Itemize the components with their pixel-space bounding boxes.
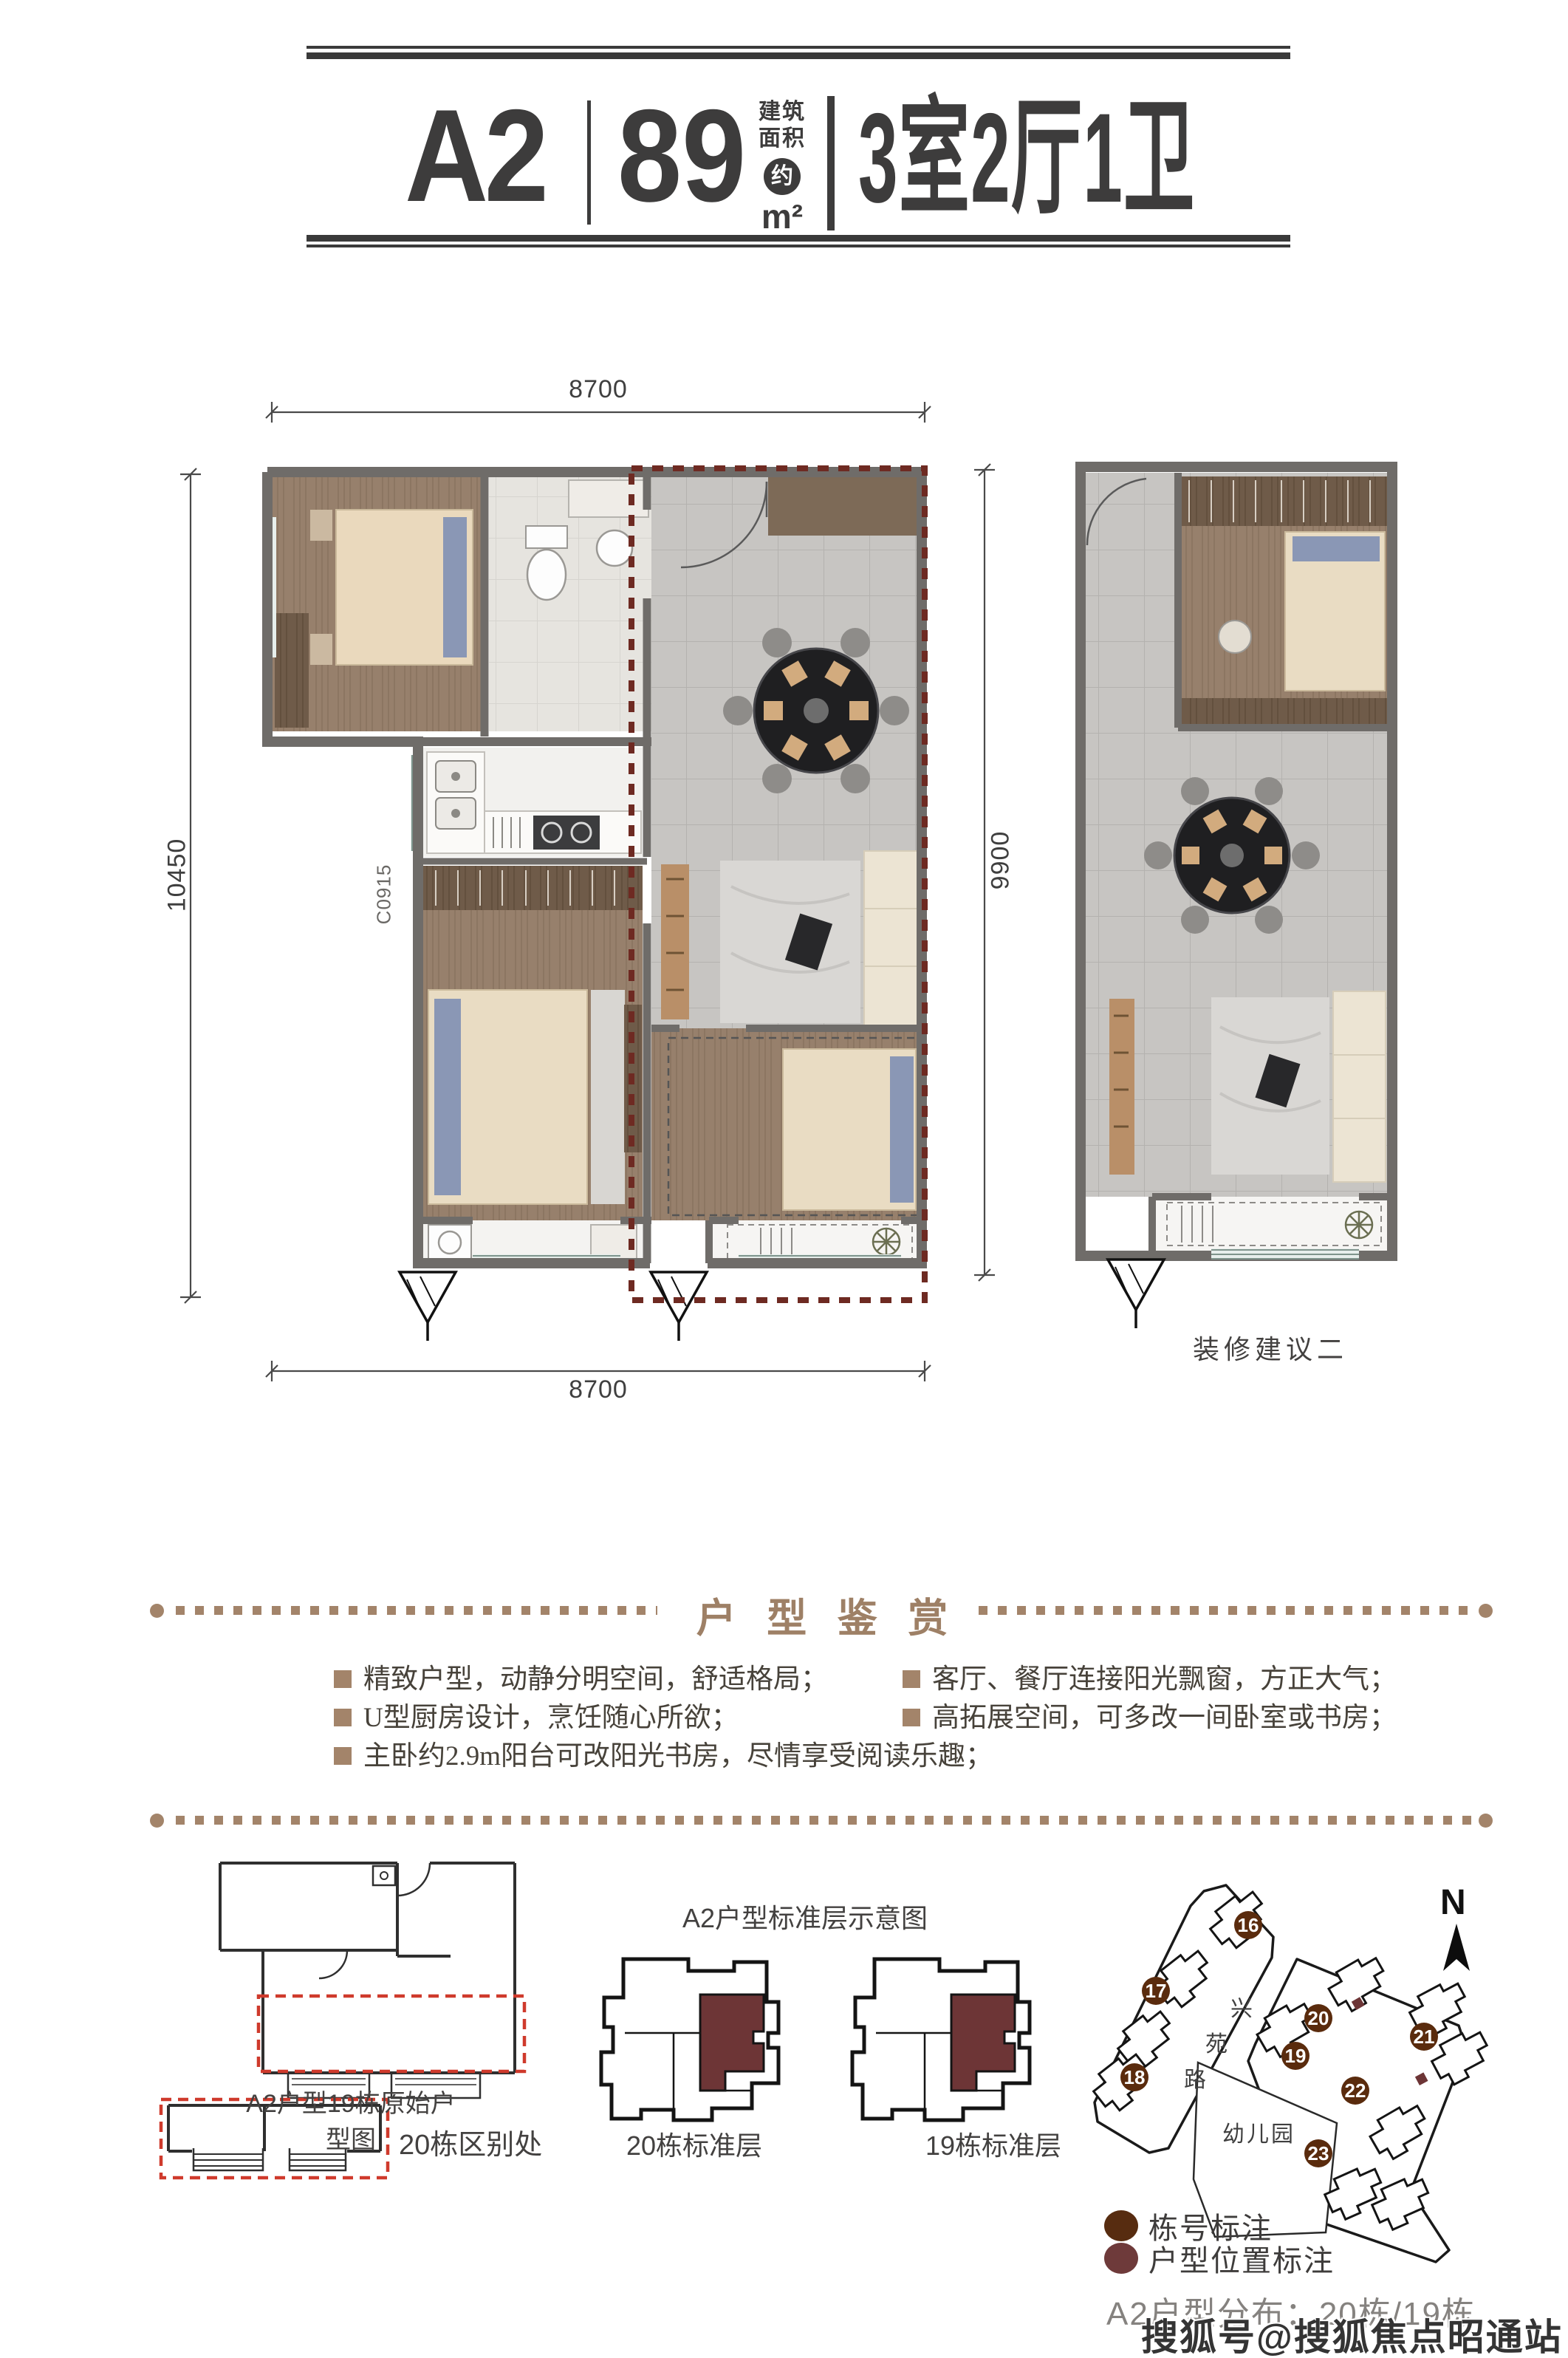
building-marker: 17 bbox=[1142, 1977, 1170, 2005]
feature-text: 高拓展空间，可多改一间卧室或书房； bbox=[932, 1702, 1397, 1735]
feature-item: 主卧约2.9m阳台可改阳光书房，尽情享受阅读乐趣； bbox=[334, 1740, 993, 1773]
layout-text: 3室2厅1卫 bbox=[858, 95, 1195, 222]
divider2-dot-left bbox=[150, 1814, 164, 1828]
building-marker: 18 bbox=[1120, 2063, 1148, 2091]
area-value: 89 bbox=[617, 90, 746, 222]
building-marker: 19 bbox=[1281, 2042, 1309, 2070]
header-rule-bottom-thin bbox=[307, 245, 1290, 247]
header-rule-top-thin bbox=[307, 46, 1290, 49]
main-floorplan bbox=[180, 402, 995, 1381]
road-char: 路 bbox=[1184, 2061, 1206, 2094]
legend-unit-row: 户型位置标注 bbox=[1104, 2237, 1335, 2280]
road-char: 苑 bbox=[1205, 2026, 1228, 2058]
feature-item: 高拓展空间，可多改一间卧室或书房； bbox=[903, 1702, 1397, 1735]
legend-unit-label: 户型位置标注 bbox=[1148, 2237, 1335, 2280]
unit-code: A2 bbox=[405, 90, 545, 222]
bullet-square-icon bbox=[334, 1670, 352, 1688]
feature-text: 主卧约2.9m阳台可改阳光书房，尽情享受阅读乐趣； bbox=[363, 1740, 993, 1773]
approx-badge: 约 bbox=[764, 158, 801, 195]
area-unit: m² bbox=[753, 196, 811, 236]
standard-floor-diagrams bbox=[601, 1959, 1030, 2120]
building-marker: 23 bbox=[1304, 2139, 1332, 2167]
dim-top: 8700 bbox=[543, 375, 654, 404]
feature-text: 客厅、餐厅连接阳光飘窗，方正大气； bbox=[932, 1664, 1397, 1696]
feature-text: U型厨房设计，烹饪随心所欲； bbox=[363, 1702, 739, 1735]
divider2-dash bbox=[176, 1816, 1477, 1825]
variant-label: 装修建议二 bbox=[1193, 1328, 1348, 1367]
bullet-square-icon bbox=[334, 1747, 352, 1765]
building-marker: 21 bbox=[1410, 2023, 1438, 2051]
building19-caption: 19栋标准层 bbox=[890, 2125, 1097, 2163]
building-marker: 16 bbox=[1234, 1911, 1262, 1939]
area-label-line2: 面积 bbox=[753, 126, 811, 152]
window-code: C0915 bbox=[373, 847, 396, 943]
variant-floorplan bbox=[1081, 467, 1392, 1328]
divider2-dot-right bbox=[1479, 1814, 1493, 1828]
difference-caption: 20栋区别处 bbox=[399, 2122, 542, 2162]
bullet-square-icon bbox=[903, 1709, 920, 1726]
appreciation-title: 户 型 鉴 赏 bbox=[668, 1585, 986, 1644]
dim-left: 10450 bbox=[163, 813, 192, 938]
floorplan-sheet: A2 89 建筑 面积 约 m² 3室2厅1卫 8700 8700 10450 … bbox=[0, 0, 1568, 2358]
north-label: N bbox=[1440, 1882, 1466, 1923]
divider1-dot-right bbox=[1479, 1604, 1493, 1618]
north-arrow-icon bbox=[1443, 1924, 1470, 1971]
bullet-square-icon bbox=[903, 1670, 920, 1688]
divider1-dot-left bbox=[150, 1604, 164, 1618]
building20-caption: 20栋标准层 bbox=[591, 2125, 798, 2163]
road-char: 兴 bbox=[1230, 1990, 1253, 2023]
watermark: 搜狐号@搜狐焦点昭通站 bbox=[1141, 2308, 1563, 2358]
building-marker: 20 bbox=[1304, 2004, 1332, 2032]
feature-item: 精致户型，动静分明空间，舒适格局； bbox=[334, 1664, 828, 1696]
feature-text: 精致户型，动静分明空间，舒适格局； bbox=[363, 1664, 828, 1696]
feature-item: U型厨房设计，烹饪随心所欲； bbox=[334, 1702, 739, 1735]
header-rule-bottom-thick bbox=[307, 235, 1290, 242]
bullet-square-icon bbox=[334, 1709, 352, 1726]
divider1-dash-left bbox=[176, 1606, 657, 1615]
header-divider-2 bbox=[827, 96, 835, 230]
dim-right: 9900 bbox=[987, 805, 1016, 916]
header-divider-1 bbox=[587, 100, 591, 225]
standard-floor-title: A2户型标准层示意图 bbox=[657, 1897, 953, 1935]
unit-marker-icon bbox=[1104, 2243, 1138, 2274]
header-rule-top-thick bbox=[307, 52, 1290, 59]
divider1-dash-right bbox=[979, 1606, 1477, 1615]
feature-item: 客厅、餐厅连接阳光飘窗，方正大气； bbox=[903, 1664, 1397, 1696]
kindergarten-label: 幼儿园 bbox=[1222, 2116, 1295, 2148]
dim-bottom: 8700 bbox=[543, 1375, 654, 1404]
building-marker: 22 bbox=[1341, 2077, 1369, 2105]
artwork-layer bbox=[0, 0, 1568, 2358]
area-label-line1: 建筑 bbox=[753, 99, 811, 126]
area-label-block: 建筑 面积 约 m² bbox=[753, 99, 811, 236]
